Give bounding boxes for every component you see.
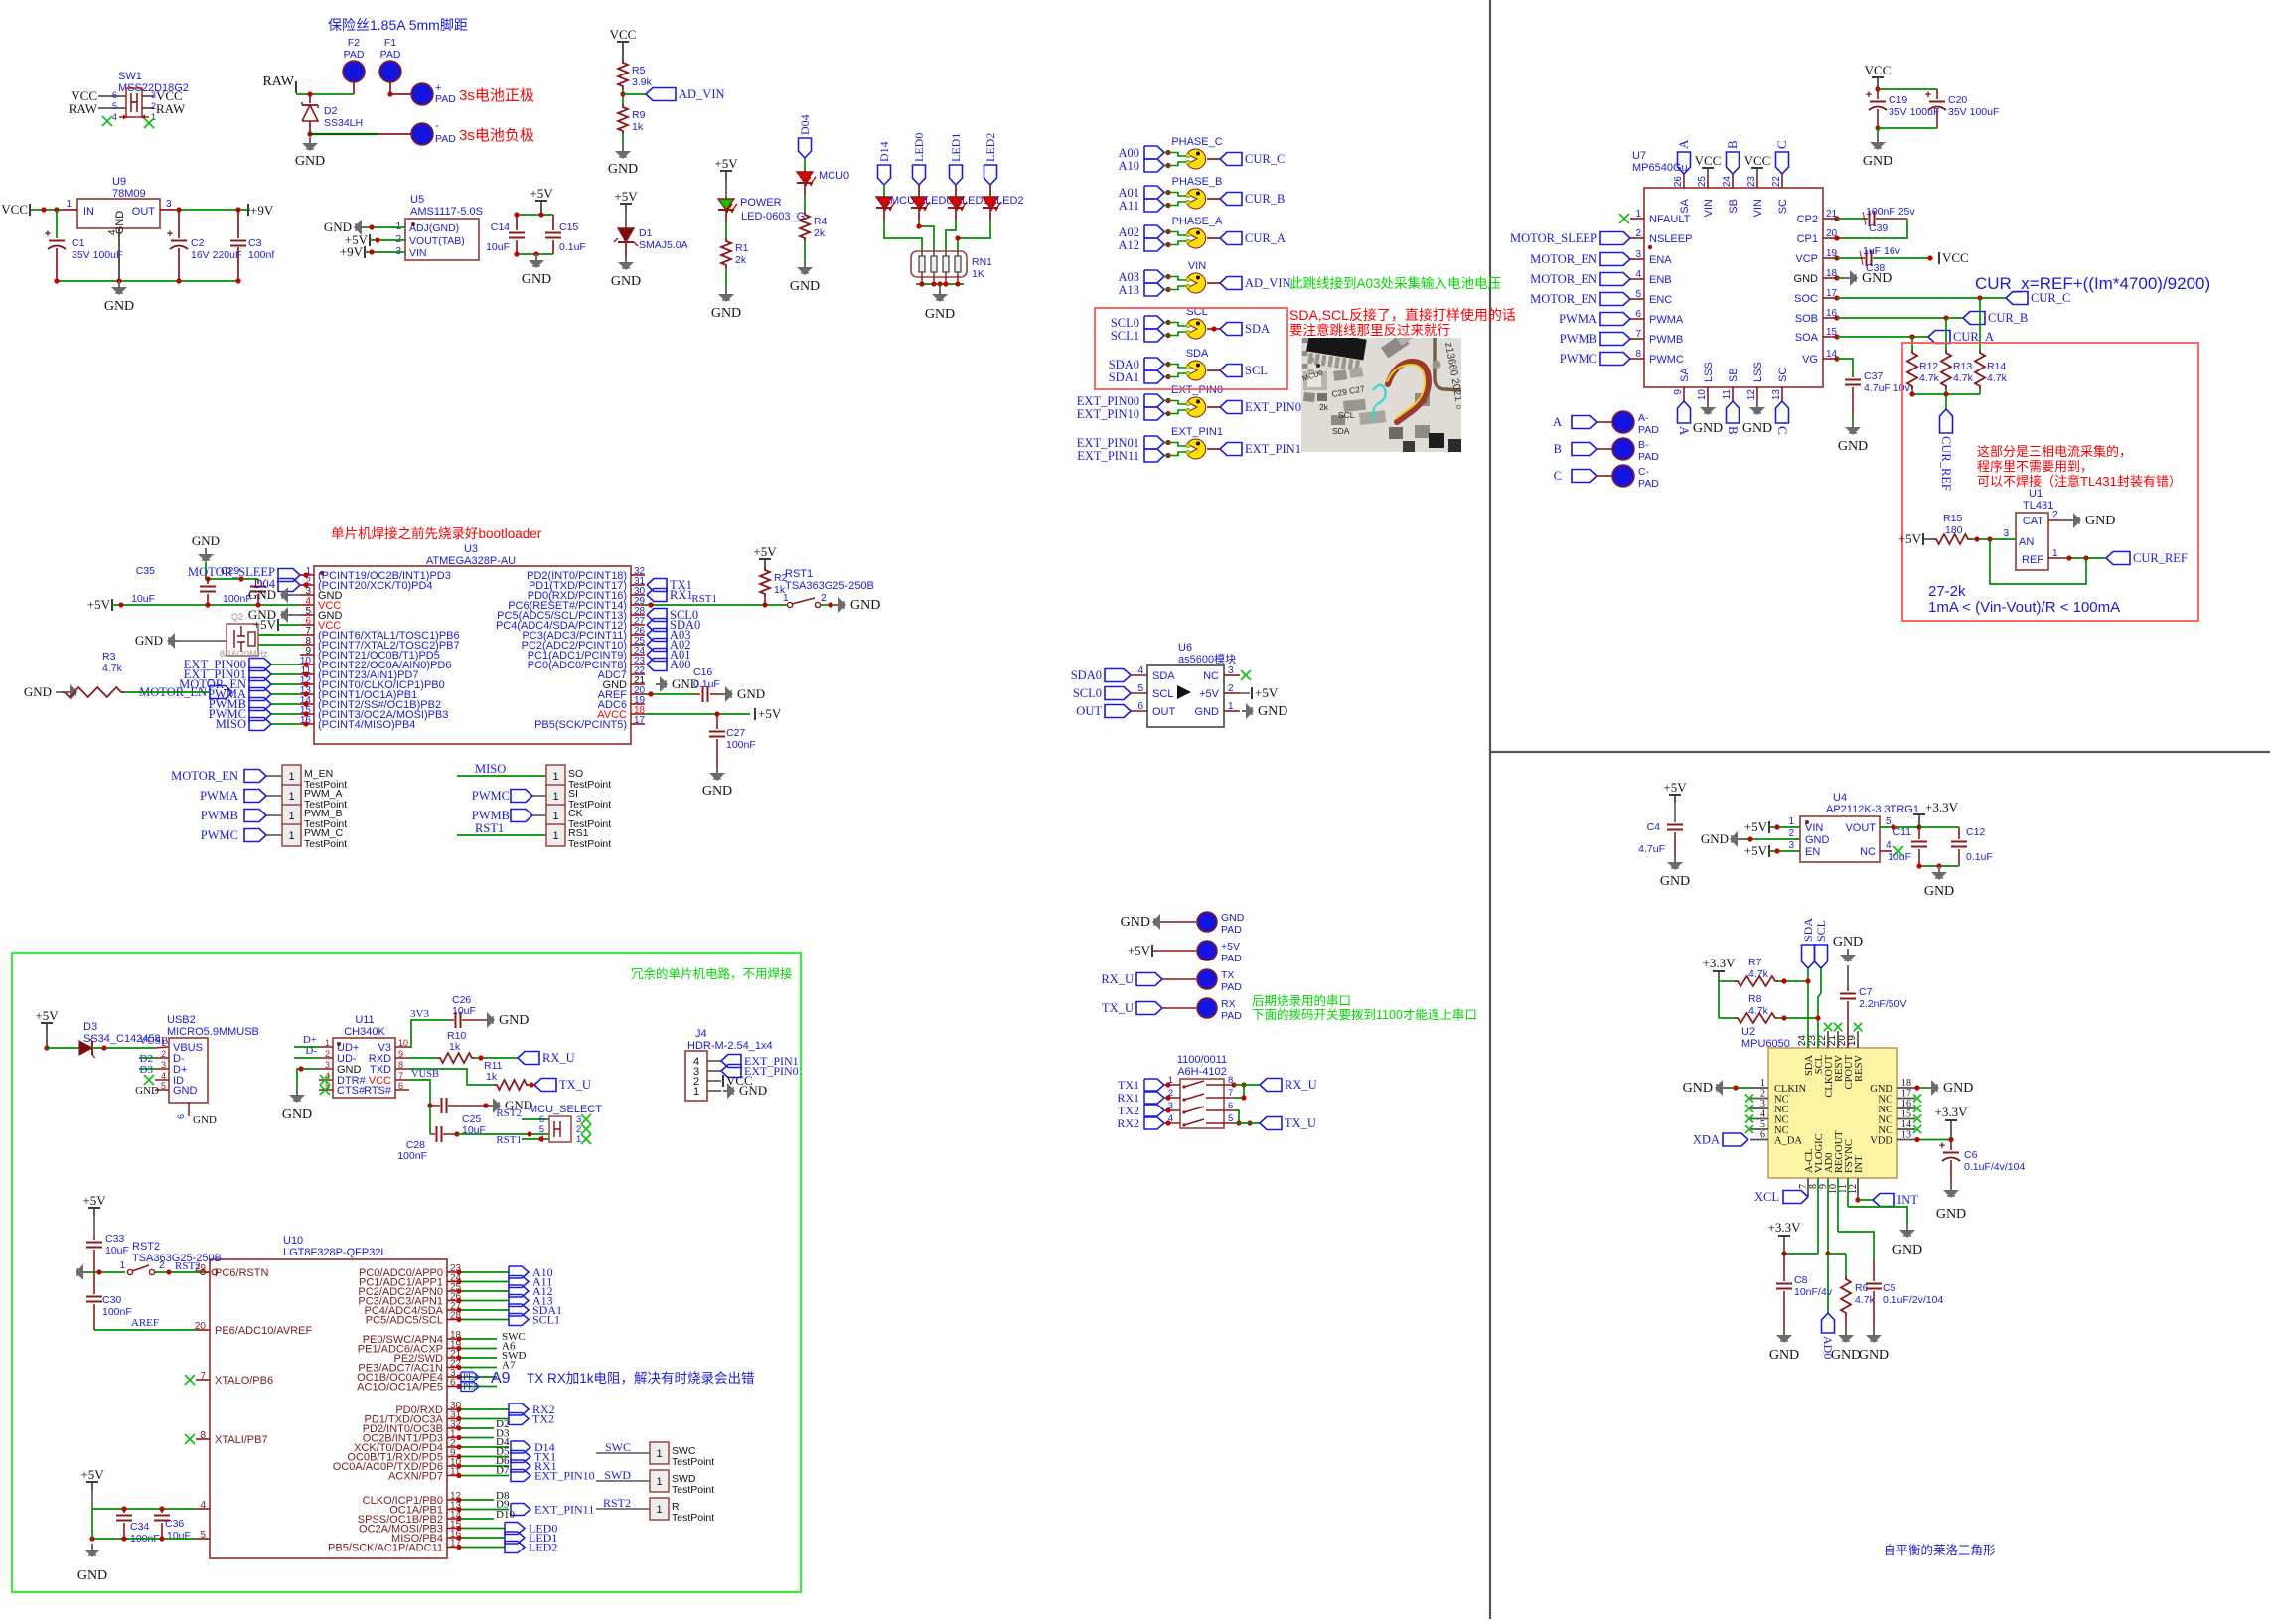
- svg-text:0.1uF/2v/104: 0.1uF/2v/104: [1883, 1294, 1943, 1306]
- svg-text:MOTOR_SLEEP: MOTOR_SLEEP: [1510, 231, 1597, 245]
- svg-text:SCL: SCL: [1338, 410, 1355, 420]
- svg-text:VCC: VCC: [1744, 153, 1771, 168]
- svg-text:PAD: PAD: [1221, 981, 1242, 993]
- svg-text:1: 1: [656, 1448, 662, 1460]
- svg-text:1: 1: [1168, 1075, 1173, 1086]
- svg-text:3: 3: [2003, 528, 2009, 539]
- svg-text:C6: C6: [1964, 1149, 1978, 1161]
- svg-text:PWMB: PWMB: [1560, 332, 1597, 346]
- svg-text:XCL: XCL: [1754, 1190, 1779, 1204]
- svg-text:SS34LH: SS34LH: [324, 117, 363, 129]
- svg-text:PAD: PAD: [1638, 424, 1659, 436]
- svg-text:PC5/ADC5/SCL: PC5/ADC5/SCL: [366, 1315, 443, 1327]
- svg-text:PAD: PAD: [1221, 924, 1242, 936]
- svg-text:+5V: +5V: [1255, 685, 1279, 700]
- svg-text:100nf: 100nf: [248, 249, 274, 261]
- svg-text:REF: REF: [2022, 554, 2043, 566]
- svg-text:GND: GND: [295, 154, 325, 169]
- svg-text:VIN: VIN: [1805, 822, 1823, 834]
- svg-text:CUR_B: CUR_B: [1988, 311, 2028, 325]
- svg-text:GND: GND: [173, 1085, 198, 1097]
- svg-text:NC: NC: [1860, 846, 1876, 858]
- svg-text:1: 1: [288, 771, 294, 783]
- svg-text:SCL0: SCL0: [1073, 686, 1102, 700]
- svg-text:LGT8F328P-QFP32L: LGT8F328P-QFP32L: [283, 1247, 387, 1258]
- svg-text:24: 24: [1722, 176, 1733, 188]
- svg-text:2: 2: [2052, 510, 2058, 520]
- svg-text:SA: SA: [1679, 368, 1691, 382]
- svg-text:A: A: [1677, 426, 1692, 436]
- svg-text:+9V: +9V: [250, 203, 274, 218]
- svg-text:GND: GND: [1805, 834, 1830, 846]
- svg-text:保险丝1.85A 5mm脚距: 保险丝1.85A 5mm脚距: [328, 17, 468, 33]
- svg-text:PAD: PAD: [1221, 1010, 1242, 1022]
- svg-text:R12: R12: [1919, 361, 1938, 372]
- svg-text:GND: GND: [1859, 1348, 1889, 1363]
- svg-text:MOTOR_EN: MOTOR_EN: [171, 769, 238, 783]
- svg-text:1: 1: [66, 199, 72, 210]
- svg-text:4.7k: 4.7k: [1987, 372, 2008, 384]
- svg-text:GND: GND: [135, 1085, 159, 1097]
- svg-text:SDA0: SDA0: [1071, 668, 1102, 682]
- svg-text:1: 1: [288, 791, 294, 803]
- svg-text:2: 2: [1168, 1088, 1173, 1099]
- svg-text:VG: VG: [1802, 354, 1818, 366]
- svg-text:R4: R4: [814, 216, 828, 227]
- svg-text:5: 5: [1886, 816, 1892, 827]
- svg-text:要注意跳线那里反过来就行: 要注意跳线那里反过来就行: [1289, 322, 1450, 338]
- svg-text:GND: GND: [737, 686, 765, 701]
- svg-text:RST2: RST2: [132, 1241, 160, 1253]
- svg-text:GND: GND: [1221, 912, 1245, 924]
- svg-text:GND: GND: [1683, 1081, 1713, 1096]
- svg-text:1k: 1k: [632, 121, 644, 133]
- svg-text:OUT: OUT: [132, 206, 156, 218]
- svg-text:AC1O/OC1A/PE5: AC1O/OC1A/PE5: [357, 1382, 443, 1394]
- svg-text:PAD: PAD: [435, 93, 456, 105]
- svg-text:SCL0: SCL0: [1111, 316, 1139, 330]
- svg-text:A13: A13: [1118, 283, 1139, 297]
- svg-text:+5V: +5V: [1199, 688, 1220, 700]
- svg-text:RX_U: RX_U: [1285, 1078, 1317, 1092]
- svg-text:+9V: +9V: [340, 244, 364, 259]
- svg-text:GND: GND: [1833, 935, 1863, 950]
- svg-text:B-: B-: [1638, 439, 1649, 451]
- svg-text:TX: TX: [1221, 969, 1234, 981]
- svg-text:EXT_PIN11: EXT_PIN11: [534, 1503, 594, 1517]
- svg-text:GND: GND: [522, 272, 551, 287]
- svg-text:35V 100uF: 35V 100uF: [1889, 106, 1939, 118]
- svg-text:A02: A02: [1118, 225, 1139, 239]
- svg-text:GND: GND: [77, 1568, 107, 1583]
- svg-text:U3: U3: [464, 543, 478, 555]
- svg-text:10uF: 10uF: [452, 1005, 476, 1017]
- svg-text:C36: C36: [165, 1518, 184, 1530]
- svg-text:EXT_PIN01: EXT_PIN01: [1077, 436, 1139, 450]
- svg-text:26: 26: [1673, 176, 1684, 188]
- svg-text:SDA: SDA: [1801, 918, 1815, 942]
- svg-text:1: 1: [161, 1038, 166, 1048]
- svg-text:D3: D3: [140, 1064, 154, 1076]
- svg-text:SOB: SOB: [1795, 313, 1818, 325]
- svg-text:100nF: 100nF: [726, 739, 756, 751]
- svg-text:TestPoint: TestPoint: [568, 838, 611, 850]
- svg-text:PWMA: PWMA: [1559, 312, 1597, 326]
- svg-text:C11: C11: [1893, 826, 1912, 838]
- svg-text:MISO: MISO: [475, 762, 506, 776]
- svg-text:A-: A-: [1638, 412, 1649, 424]
- svg-text:4: 4: [112, 112, 117, 122]
- svg-text:XDA: XDA: [1693, 1133, 1720, 1147]
- svg-text:IN: IN: [83, 206, 94, 218]
- svg-text:EXT_PIN11: EXT_PIN11: [1077, 449, 1139, 463]
- svg-text:+5V: +5V: [1221, 941, 1240, 953]
- svg-text:ENB: ENB: [1649, 274, 1672, 286]
- svg-text:C4: C4: [1647, 821, 1661, 833]
- svg-text:2: 2: [821, 593, 827, 604]
- svg-text:VIN: VIN: [1188, 260, 1206, 272]
- svg-text:4.7k: 4.7k: [1919, 372, 1940, 384]
- svg-text:自平衡的莱洛三角形: 自平衡的莱洛三角形: [1884, 1543, 1996, 1557]
- svg-text:2: 2: [159, 1260, 165, 1271]
- svg-text:+5V: +5V: [758, 706, 782, 721]
- svg-text:GND: GND: [1121, 915, 1150, 930]
- svg-text:VCC: VCC: [1, 202, 28, 217]
- svg-text:NC: NC: [1774, 1115, 1789, 1126]
- svg-text:单片机焊接之前先烧录好bootloader: 单片机焊接之前先烧录好bootloader: [331, 525, 542, 541]
- svg-text:VOUT: VOUT: [1845, 822, 1876, 834]
- svg-text:C: C: [1775, 426, 1790, 435]
- svg-text:4.7k: 4.7k: [1748, 968, 1769, 980]
- svg-text:3.9k: 3.9k: [632, 76, 653, 88]
- svg-text:MISO: MISO: [216, 717, 246, 731]
- svg-text:3s电池正极: 3s电池正极: [459, 87, 534, 104]
- svg-text:A6H-4102: A6H-4102: [1177, 1066, 1227, 1078]
- svg-text:TestPoint: TestPoint: [304, 838, 347, 850]
- svg-text:PWMB: PWMB: [472, 809, 510, 822]
- svg-text:GND: GND: [1195, 706, 1220, 718]
- svg-text:TX_U: TX_U: [559, 1078, 591, 1092]
- svg-text:下面的拨码开关要拨到1100才能连上串口: 下面的拨码开关要拨到1100才能连上串口: [1252, 1007, 1477, 1022]
- svg-text:10uF: 10uF: [1888, 851, 1911, 863]
- svg-text:INT: INT: [1897, 1193, 1918, 1207]
- svg-text:J4: J4: [695, 1028, 707, 1040]
- svg-text:F2: F2: [348, 37, 360, 49]
- svg-text:U4: U4: [1833, 792, 1847, 804]
- svg-text:+3.3V: +3.3V: [1925, 800, 1959, 814]
- svg-text:AREF: AREF: [131, 1317, 159, 1329]
- svg-text:+5V: +5V: [614, 189, 638, 204]
- svg-text:PHASE_B: PHASE_B: [1172, 176, 1223, 188]
- svg-text:C1: C1: [72, 237, 85, 249]
- svg-text:B: B: [1726, 426, 1740, 435]
- svg-text:TX2: TX2: [1118, 1104, 1139, 1117]
- svg-text:CUR_x=REF+((Im*4700)/9200): CUR_x=REF+((Im*4700)/9200): [1975, 274, 2210, 293]
- svg-text:+3.3V: +3.3V: [1703, 956, 1737, 970]
- svg-text:TestPoint: TestPoint: [672, 1456, 714, 1468]
- svg-text:PWMC: PWMC: [201, 828, 238, 842]
- svg-text:22: 22: [1771, 176, 1782, 188]
- svg-text:SCL: SCL: [1814, 920, 1828, 942]
- svg-text:NC: NC: [1774, 1125, 1789, 1136]
- svg-text:CUR_A: CUR_A: [1245, 231, 1286, 245]
- svg-text:MOTOR_EN: MOTOR_EN: [1530, 252, 1597, 266]
- svg-text:+5V: +5V: [1128, 943, 1151, 958]
- svg-text:1: 1: [1788, 816, 1794, 827]
- svg-text:SWC: SWC: [605, 1440, 631, 1454]
- svg-text:GND: GND: [1924, 884, 1954, 899]
- svg-text:AP2112K-3.3TRG1: AP2112K-3.3TRG1: [1826, 804, 1919, 815]
- svg-text:A10: A10: [1118, 159, 1139, 173]
- svg-text:VIN: VIN: [1703, 199, 1715, 217]
- svg-text:PAD: PAD: [435, 133, 456, 145]
- svg-text:PAD: PAD: [344, 49, 365, 61]
- svg-text:EXT_PIN10: EXT_PIN10: [534, 1469, 595, 1483]
- svg-text:23: 23: [1746, 176, 1757, 188]
- svg-text:as5600模块: as5600模块: [1178, 653, 1236, 665]
- svg-text:LED2: LED2: [529, 1541, 557, 1554]
- svg-text:ENA: ENA: [1649, 254, 1672, 266]
- svg-text:6: 6: [176, 1114, 186, 1119]
- svg-text:MICRO5.9MMUSB: MICRO5.9MMUSB: [167, 1026, 259, 1038]
- svg-text:GND: GND: [1701, 831, 1729, 846]
- svg-text:PAD: PAD: [1221, 953, 1242, 964]
- svg-text:LED-0603_G: LED-0603_G: [741, 211, 805, 222]
- svg-text:RTS#: RTS#: [364, 1085, 392, 1097]
- svg-text:GND: GND: [711, 306, 741, 321]
- svg-text:PWMC: PWMC: [1560, 352, 1597, 366]
- svg-text:3: 3: [166, 199, 172, 210]
- svg-text:U10: U10: [283, 1235, 303, 1247]
- svg-text:4: 4: [1886, 840, 1892, 851]
- svg-text:+5V: +5V: [714, 156, 738, 171]
- svg-text:U2: U2: [1741, 1026, 1755, 1038]
- svg-text:USB2: USB2: [167, 1014, 196, 1026]
- svg-text:4: 4: [1168, 1113, 1173, 1124]
- svg-text:LED2: LED2: [984, 133, 997, 162]
- svg-text:RAW: RAW: [69, 101, 98, 116]
- svg-text:100nF: 100nF: [397, 1150, 427, 1162]
- svg-text:0.1uF: 0.1uF: [693, 678, 720, 690]
- svg-text:PE6/ADC10/AVREF: PE6/ADC10/AVREF: [215, 1325, 313, 1337]
- svg-text:+5V: +5V: [753, 544, 777, 559]
- svg-text:PAD: PAD: [380, 49, 401, 61]
- svg-text:GND: GND: [611, 274, 641, 289]
- svg-text:CUR_REF: CUR_REF: [1939, 436, 1953, 491]
- svg-text:4.7k: 4.7k: [1953, 372, 1974, 384]
- svg-text:PWMB: PWMB: [201, 809, 238, 822]
- svg-text:VCC: VCC: [1865, 63, 1892, 77]
- svg-text:180: 180: [1945, 524, 1963, 536]
- svg-text:SDA,SCL反接了，直接打样使用的话: SDA,SCL反接了，直接打样使用的话: [1289, 307, 1516, 323]
- svg-text:4.7uF 10v: 4.7uF 10v: [1864, 382, 1910, 394]
- svg-text:4.7k: 4.7k: [1748, 1005, 1769, 1017]
- svg-text:LED0: LED0: [912, 133, 926, 162]
- svg-text:100nF 25v: 100nF 25v: [1866, 206, 1915, 218]
- svg-text:+5V: +5V: [1898, 531, 1922, 546]
- svg-text:VCC: VCC: [1695, 153, 1722, 168]
- svg-text:SB: SB: [1728, 368, 1740, 382]
- svg-text:OUT: OUT: [1152, 706, 1176, 718]
- svg-text:C-: C-: [1638, 466, 1650, 478]
- svg-text:PB5/SCK/AC1P/ADC11: PB5/SCK/AC1P/ADC11: [328, 1543, 443, 1554]
- svg-text:SOC: SOC: [1794, 293, 1818, 305]
- svg-text:+5V: +5V: [80, 1467, 104, 1482]
- svg-text:A11: A11: [1119, 199, 1139, 213]
- svg-text:9: 9: [1673, 389, 1684, 395]
- svg-text:D7: D7: [496, 1465, 510, 1477]
- svg-text:C16: C16: [693, 666, 712, 678]
- svg-text:EXT_PIN10: EXT_PIN10: [1077, 407, 1139, 421]
- svg-text:10nF/4v: 10nF/4v: [1794, 1286, 1833, 1298]
- svg-text:1mA < (Vin-Vout)/R < 100mA: 1mA < (Vin-Vout)/R < 100mA: [1928, 599, 2120, 616]
- svg-text:SCL1: SCL1: [1111, 329, 1139, 343]
- svg-text:SC: SC: [1777, 368, 1789, 382]
- svg-text:D14: D14: [877, 141, 891, 162]
- svg-text:R14: R14: [1987, 361, 2006, 372]
- svg-text:LSS: LSS: [1703, 362, 1715, 382]
- svg-text:10: 10: [1697, 389, 1708, 401]
- svg-text:GND: GND: [850, 598, 880, 613]
- svg-text:CUR_A: CUR_A: [1953, 330, 1994, 344]
- svg-text:25: 25: [1697, 176, 1708, 188]
- svg-text:CP1: CP1: [1797, 233, 1818, 245]
- svg-text:EN: EN: [1805, 846, 1820, 858]
- svg-text:+: +: [167, 228, 173, 240]
- svg-text:SDA: SDA: [1332, 426, 1350, 436]
- svg-text:A: A: [1676, 139, 1691, 149]
- svg-text:PWMC: PWMC: [472, 789, 510, 803]
- svg-text:RAW: RAW: [262, 74, 294, 89]
- svg-text:RST1: RST1: [785, 568, 813, 580]
- svg-text:+5V: +5V: [82, 1193, 106, 1208]
- svg-text:VCC: VCC: [1942, 250, 1969, 265]
- svg-text:1: 1: [552, 830, 558, 842]
- svg-text:U9: U9: [112, 176, 126, 188]
- svg-text:6: 6: [112, 90, 117, 100]
- svg-text:+5V: +5V: [1744, 843, 1768, 858]
- svg-text:NSLEEP: NSLEEP: [1649, 233, 1692, 245]
- svg-text:SCL: SCL: [1245, 364, 1268, 377]
- svg-text:NC: NC: [1878, 1125, 1892, 1136]
- svg-text:4.7k: 4.7k: [102, 663, 123, 674]
- svg-text:D1: D1: [639, 227, 653, 239]
- svg-text:LED2: LED2: [996, 195, 1024, 207]
- svg-text:2: 2: [1788, 828, 1794, 839]
- svg-text:GND: GND: [1838, 439, 1868, 454]
- svg-text:CLKIN: CLKIN: [1774, 1084, 1806, 1095]
- svg-text:+3.3V: +3.3V: [1935, 1105, 1969, 1119]
- svg-text:+3.3V: +3.3V: [1768, 1220, 1802, 1235]
- svg-text:PE4: PE4: [463, 1372, 479, 1382]
- svg-text:SDA1: SDA1: [1109, 370, 1139, 384]
- svg-text:1k: 1k: [486, 1071, 498, 1083]
- svg-text:PE5: PE5: [463, 1382, 479, 1392]
- svg-text:GND: GND: [1870, 1084, 1892, 1095]
- svg-text:C5: C5: [1883, 1282, 1896, 1294]
- svg-text:PB5(SCK/PCINT5): PB5(SCK/PCINT5): [534, 719, 627, 731]
- svg-text:PAD: PAD: [1638, 478, 1659, 490]
- svg-text:ACXN/PD7: ACXN/PD7: [388, 1471, 443, 1483]
- svg-text:+5V: +5V: [530, 186, 553, 201]
- svg-text:GND: GND: [104, 299, 134, 314]
- svg-text:TX2: TX2: [532, 1412, 554, 1426]
- svg-text:CH340K: CH340K: [344, 1026, 385, 1038]
- svg-text:CUR_REF: CUR_REF: [2133, 551, 2188, 565]
- svg-text:+: +: [1866, 89, 1872, 101]
- svg-text:GND: GND: [135, 633, 163, 648]
- svg-text:TX_U: TX_U: [1285, 1116, 1316, 1130]
- svg-text:MOTOR_EN: MOTOR_EN: [1530, 292, 1597, 306]
- svg-text:C8: C8: [1794, 1274, 1808, 1286]
- svg-text:CTS#: CTS#: [337, 1085, 366, 1097]
- svg-text:R13: R13: [1953, 361, 1972, 372]
- svg-text:R3: R3: [102, 651, 116, 663]
- svg-text:3s电池负极: 3s电池负极: [459, 127, 534, 144]
- svg-text:1: 1: [693, 1086, 699, 1098]
- svg-text:GND: GND: [1892, 1243, 1922, 1257]
- svg-text:GND: GND: [608, 162, 638, 177]
- svg-text:PWMA: PWMA: [200, 789, 238, 803]
- svg-text:R15: R15: [1943, 513, 1962, 524]
- svg-text:C27: C27: [726, 727, 745, 739]
- svg-text:SW1: SW1: [118, 71, 142, 82]
- svg-text:+: +: [1925, 89, 1931, 101]
- svg-text:SDA: SDA: [1152, 670, 1175, 682]
- svg-text:C33: C33: [105, 1233, 124, 1245]
- svg-text:3: 3: [1788, 840, 1794, 851]
- svg-text:35V 100uF: 35V 100uF: [72, 249, 122, 261]
- svg-text:PWMB: PWMB: [1649, 334, 1683, 346]
- svg-text:A01: A01: [1118, 186, 1139, 200]
- svg-text:AN: AN: [2019, 536, 2034, 548]
- svg-text:Q2: Q2: [231, 612, 243, 622]
- svg-text:+5V: +5V: [35, 1008, 59, 1023]
- svg-text:2k: 2k: [1319, 402, 1329, 412]
- svg-text:100nF: 100nF: [102, 1306, 132, 1318]
- svg-text:4.7uF: 4.7uF: [1638, 843, 1665, 855]
- svg-text:A00: A00: [670, 658, 691, 671]
- svg-text:+: +: [1939, 1140, 1945, 1152]
- svg-text:LSS: LSS: [1752, 362, 1764, 382]
- svg-text:后期烧录用的串口: 后期烧录用的串口: [1252, 993, 1351, 1008]
- svg-text:NC: NC: [1774, 1105, 1789, 1115]
- svg-text:GND: GND: [1831, 1348, 1861, 1363]
- svg-text:10uF: 10uF: [486, 241, 510, 253]
- svg-text:GND: GND: [1258, 704, 1287, 719]
- svg-text:GND: GND: [1794, 273, 1819, 285]
- svg-text:U7: U7: [1632, 150, 1646, 162]
- svg-text:R1: R1: [735, 242, 749, 254]
- svg-text:1: 1: [288, 830, 294, 842]
- svg-text:5: 5: [112, 101, 117, 111]
- svg-text:C3: C3: [248, 237, 262, 249]
- svg-text:EXT_PIN00: EXT_PIN00: [1077, 394, 1139, 408]
- svg-text:C: C: [1774, 140, 1789, 149]
- svg-text:RST2: RST2: [496, 1107, 522, 1119]
- svg-text:RX2: RX2: [1117, 1116, 1139, 1130]
- svg-text:SC: SC: [1777, 199, 1789, 214]
- svg-text:C2: C2: [191, 237, 205, 249]
- svg-text:MOTOR_EN: MOTOR_EN: [1530, 272, 1597, 286]
- svg-text:程序里不需要用到，: 程序里不需要用到，: [1977, 459, 2093, 474]
- svg-text:RESV: RESV: [1854, 1055, 1865, 1082]
- svg-text:VCC: VCC: [610, 27, 637, 42]
- svg-text:10uF: 10uF: [167, 1530, 191, 1542]
- svg-text:13: 13: [1771, 389, 1782, 401]
- svg-text:RX1: RX1: [1117, 1091, 1139, 1105]
- svg-text:-: -: [435, 120, 439, 132]
